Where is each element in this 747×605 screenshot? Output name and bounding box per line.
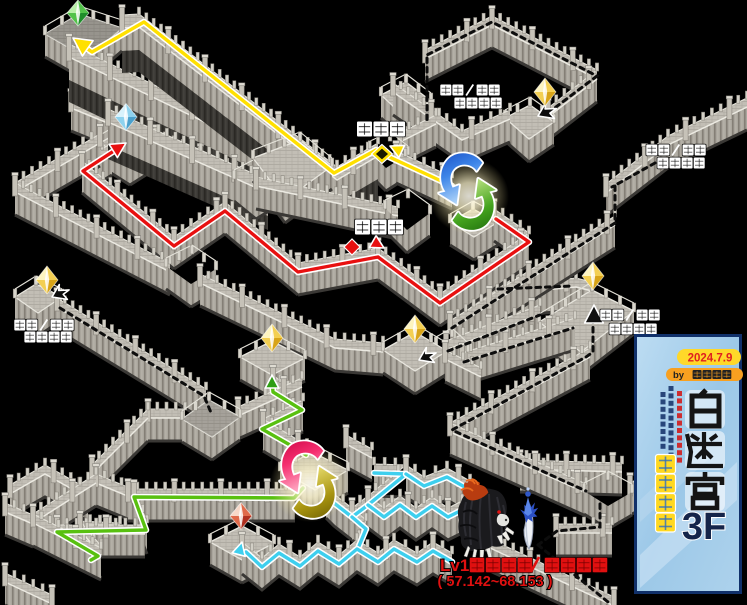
svg-text:2024.7.9: 2024.7.9 <box>688 353 733 365</box>
svg-text:by: by <box>673 370 685 381</box>
svg-text:( 57.142~68.153 ): ( 57.142~68.153 ) <box>438 574 553 590</box>
svg-text:3F: 3F <box>682 506 726 548</box>
svg-text:Lv1: Lv1 <box>440 556 469 575</box>
